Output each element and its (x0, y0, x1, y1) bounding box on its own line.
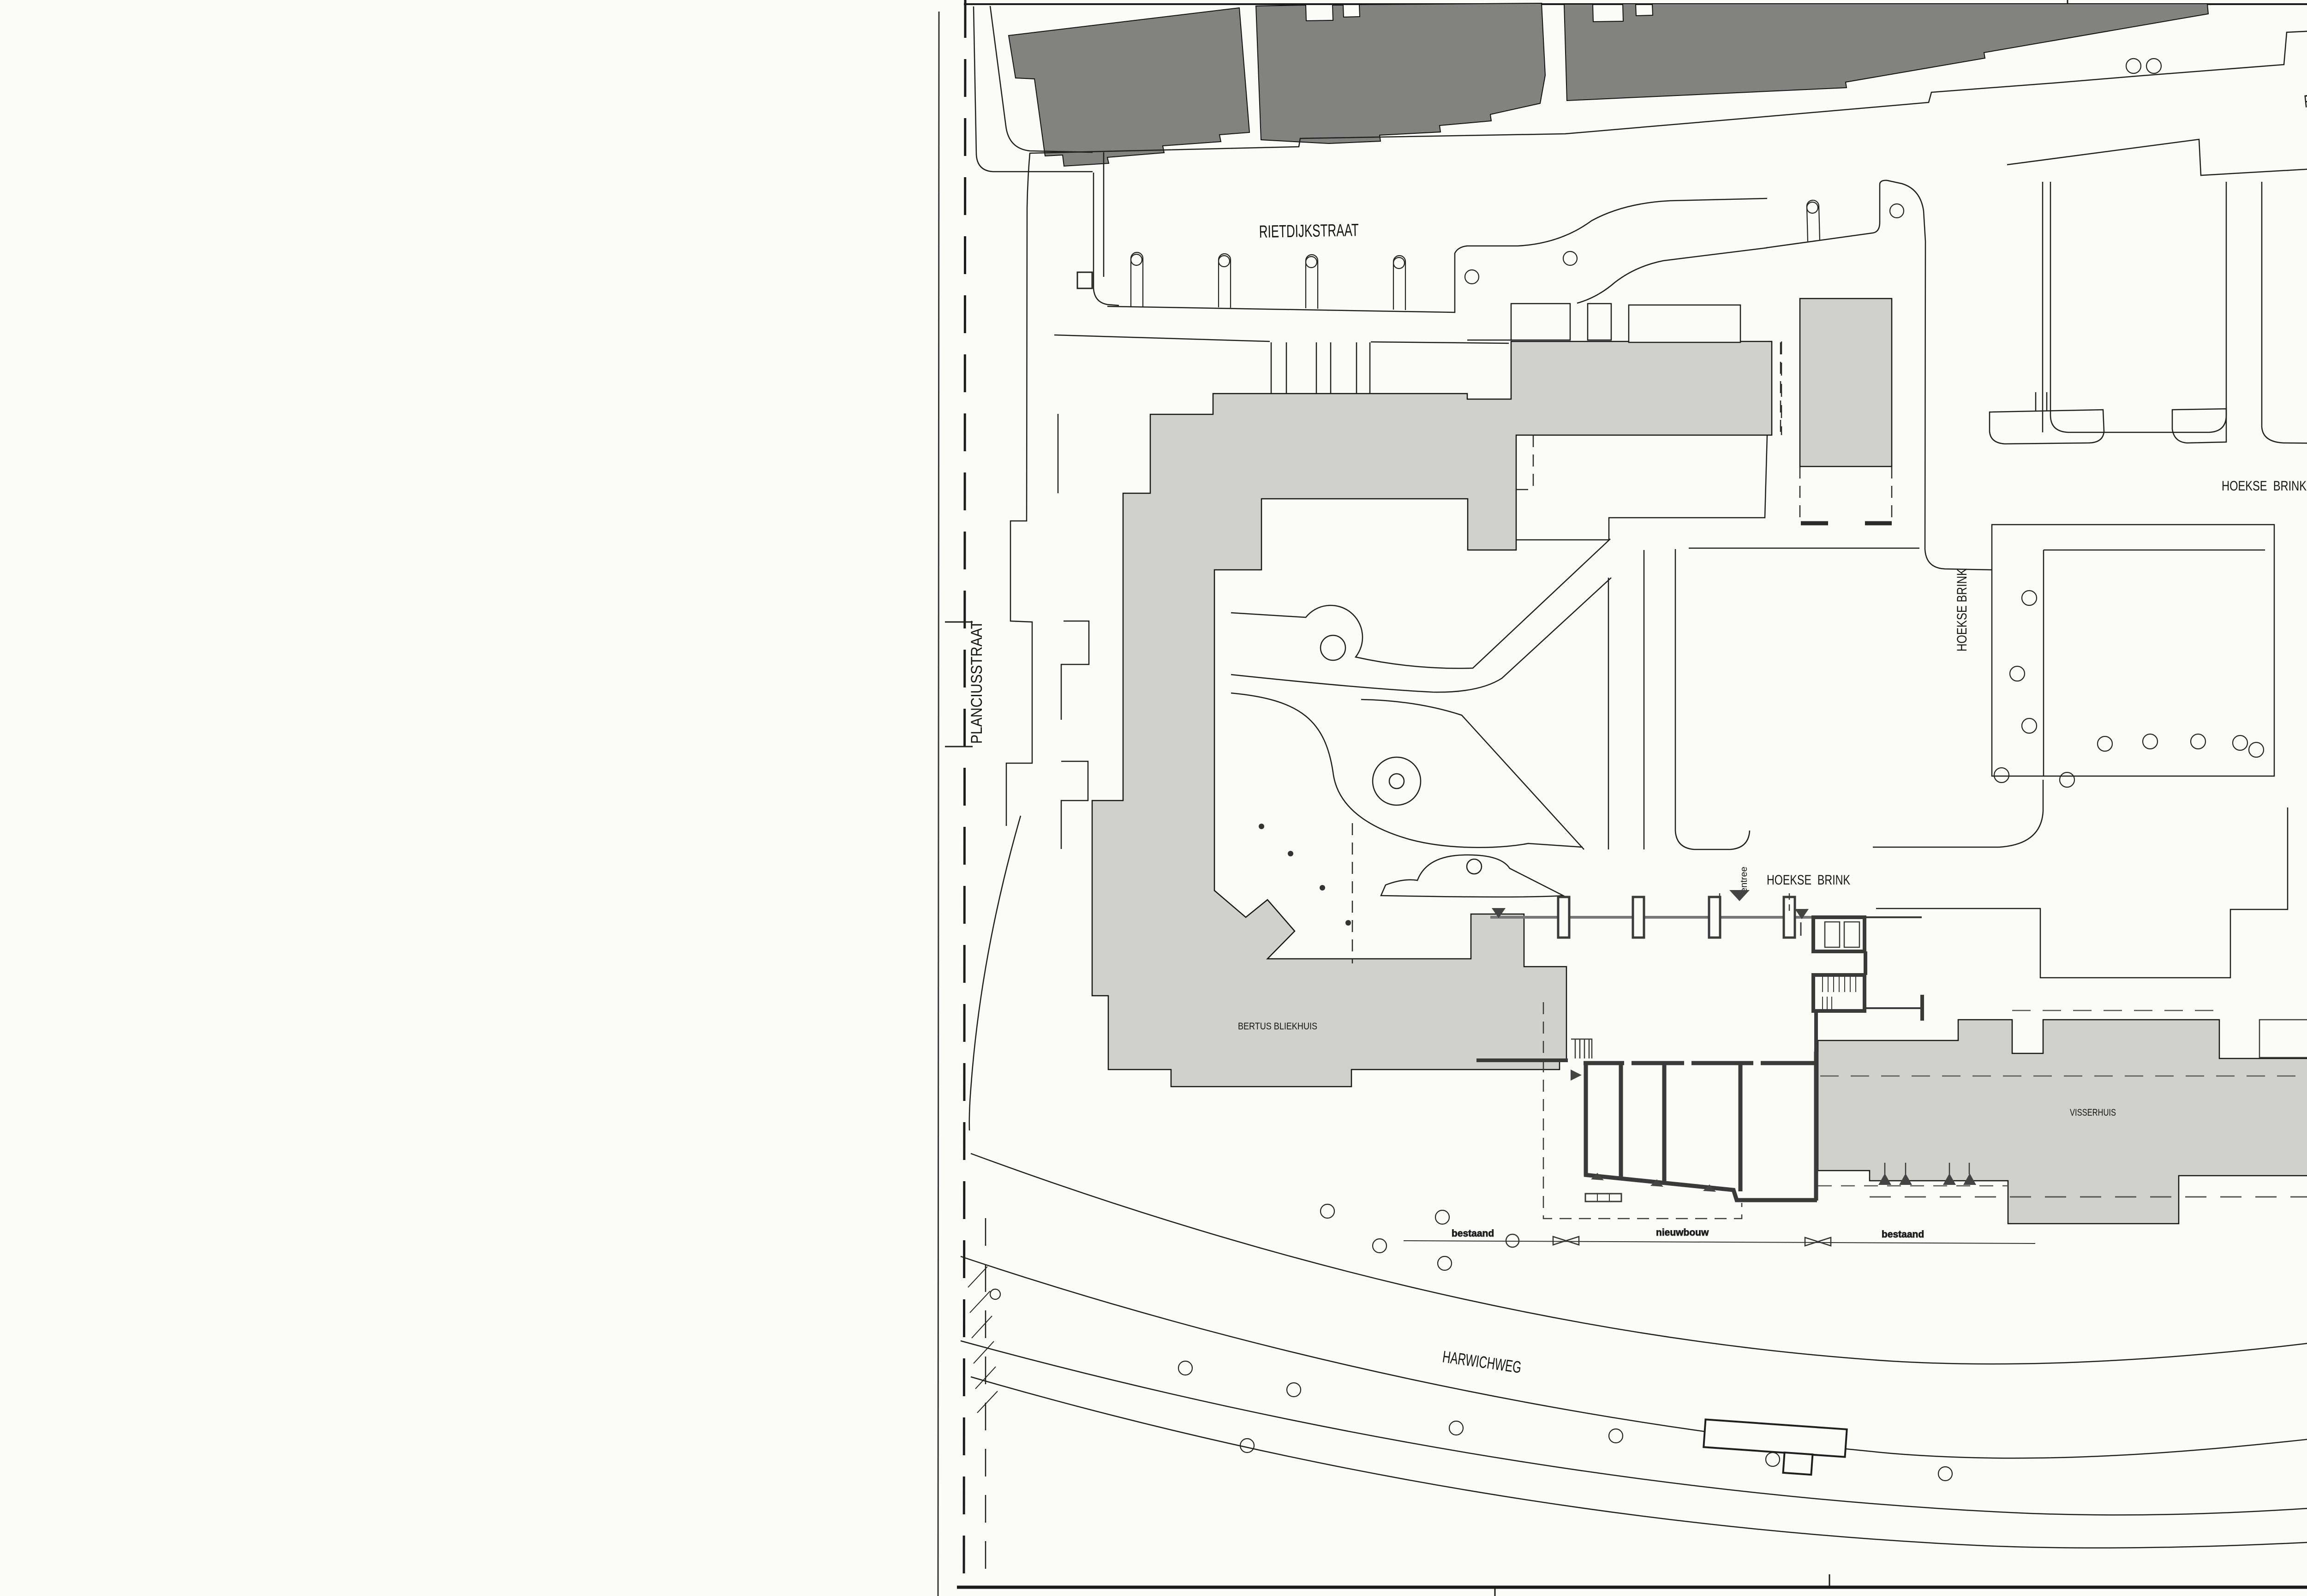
svg-text:RIETDIJKSTRAAT: RIETDIJKSTRAAT (1259, 221, 1359, 242)
svg-text:HOEKSE BRINK: HOEKSE BRINK (2222, 478, 2307, 494)
svg-text:entree: entree (1739, 867, 1749, 893)
svg-text:VISSERHUIS: VISSERHUIS (2070, 1107, 2116, 1118)
svg-text:HOEKSE BRINK: HOEKSE BRINK (1954, 568, 1970, 652)
svg-text:nieuwbouw: nieuwbouw (1656, 1227, 1709, 1238)
svg-text:HOEKSE BRINK: HOEKSE BRINK (1767, 873, 1850, 888)
svg-text:bestaand: bestaand (1882, 1229, 1924, 1240)
svg-text:PLANCIUSSTRAAT: PLANCIUSSTRAAT (968, 621, 986, 744)
svg-text:bestaand: bestaand (1452, 1228, 1494, 1239)
svg-text:BERTUS BLIEKHUIS: BERTUS BLIEKHUIS (1238, 1021, 1317, 1032)
